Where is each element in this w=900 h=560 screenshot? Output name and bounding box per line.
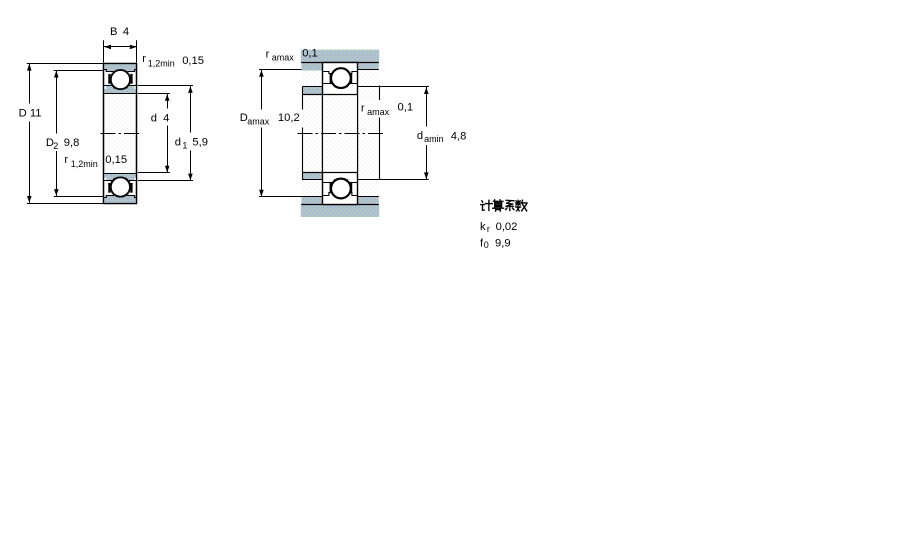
svg-text:d: d	[417, 130, 423, 142]
svg-text:1,2min: 1,2min	[148, 59, 175, 69]
svg-text:0,15: 0,15	[105, 154, 127, 166]
svg-text:0,02: 0,02	[496, 221, 518, 233]
svg-text:4,8: 4,8	[451, 130, 467, 142]
svg-text:4: 4	[163, 113, 169, 125]
svg-text:r: r	[266, 49, 270, 61]
svg-text:d: d	[151, 113, 157, 125]
svg-text:1,2min: 1,2min	[71, 159, 98, 169]
svg-text:amax: amax	[367, 107, 390, 117]
svg-text:4: 4	[123, 26, 129, 38]
svg-text:1: 1	[182, 140, 187, 150]
svg-text:d: d	[175, 136, 181, 148]
svg-text:r: r	[361, 103, 365, 115]
svg-text:D: D	[19, 107, 27, 119]
svg-text:amax: amax	[272, 52, 295, 62]
svg-text:9,9: 9,9	[495, 238, 511, 250]
svg-text:r: r	[64, 154, 68, 166]
svg-text:10,2: 10,2	[278, 112, 300, 124]
svg-text:2: 2	[53, 141, 58, 151]
svg-text:9,8: 9,8	[64, 137, 80, 149]
svg-text:0,1: 0,1	[398, 102, 414, 114]
svg-text:0,15: 0,15	[182, 55, 204, 67]
svg-text:k: k	[480, 221, 486, 233]
svg-text:amax: amax	[247, 117, 270, 127]
svg-text:amin: amin	[424, 134, 444, 144]
svg-text:r: r	[487, 224, 490, 234]
svg-text:B: B	[110, 26, 117, 38]
svg-text:0,1: 0,1	[302, 47, 318, 59]
svg-text:r: r	[142, 53, 146, 65]
svg-text:0: 0	[484, 240, 489, 250]
svg-text:5,9: 5,9	[192, 136, 208, 148]
svg-text:11: 11	[30, 107, 42, 119]
